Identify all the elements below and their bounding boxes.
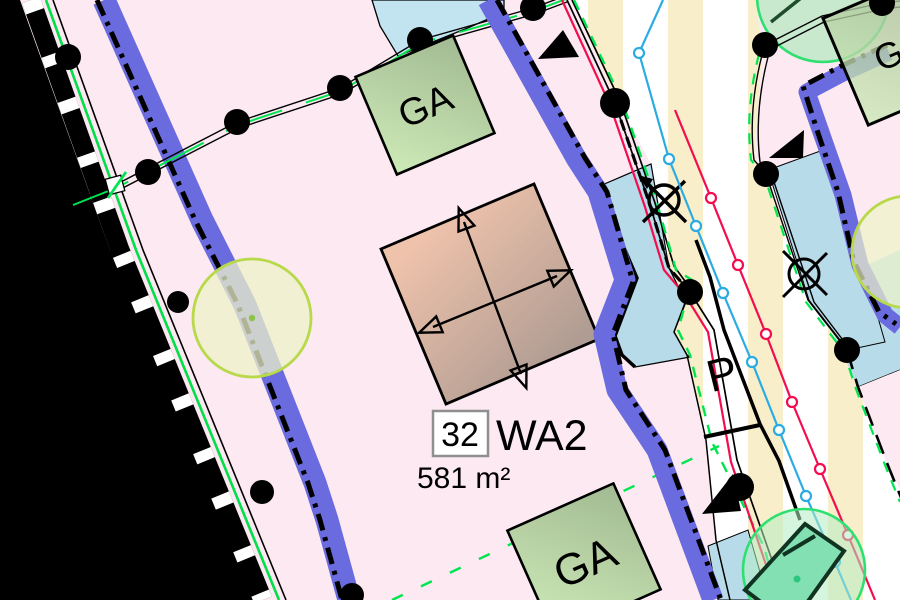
svg-text:32: 32: [441, 416, 479, 454]
svg-text:581 m²: 581 m²: [417, 462, 510, 495]
svg-text:WA2: WA2: [496, 412, 588, 460]
